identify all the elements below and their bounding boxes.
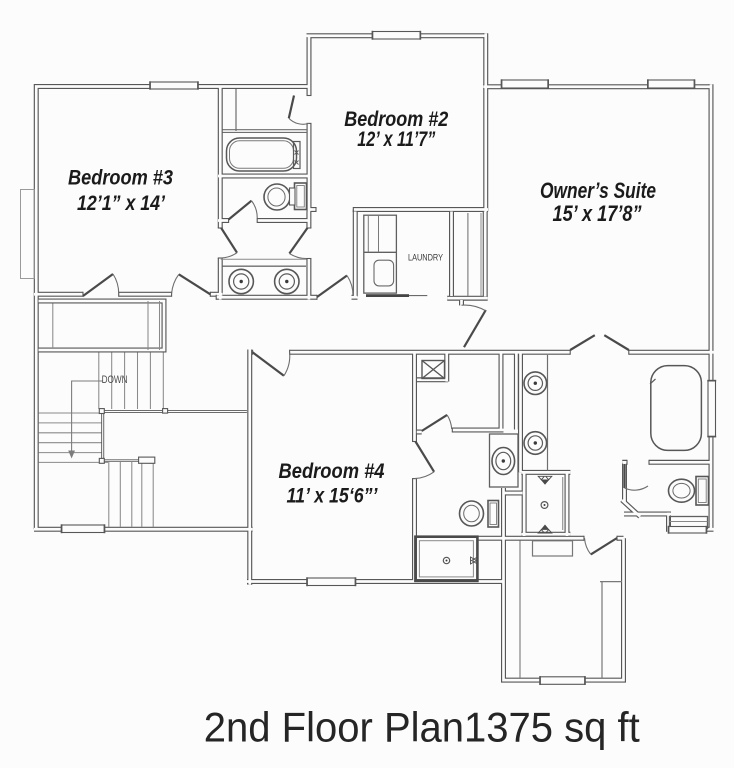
svg-text:12’ x 11’7”: 12’ x 11’7”: [357, 128, 435, 151]
svg-text:Owner’s Suite: Owner’s Suite: [540, 178, 656, 203]
svg-text:LAUNDRY: LAUNDRY: [408, 252, 444, 263]
svg-text:12’1” x 14’: 12’1” x 14’: [77, 192, 166, 215]
svg-text:Bedroom #4: Bedroom #4: [279, 460, 385, 483]
svg-text:15’ x 17’8”: 15’ x 17’8”: [553, 201, 642, 226]
svg-text:Bedroom #3: Bedroom #3: [68, 167, 173, 190]
svg-text:DOWN: DOWN: [102, 374, 128, 386]
svg-text:2nd Floor Plan1375 sq ft: 2nd Floor Plan1375 sq ft: [204, 704, 640, 751]
svg-text:11’ x 15‘6”’: 11’ x 15‘6”’: [287, 485, 379, 508]
